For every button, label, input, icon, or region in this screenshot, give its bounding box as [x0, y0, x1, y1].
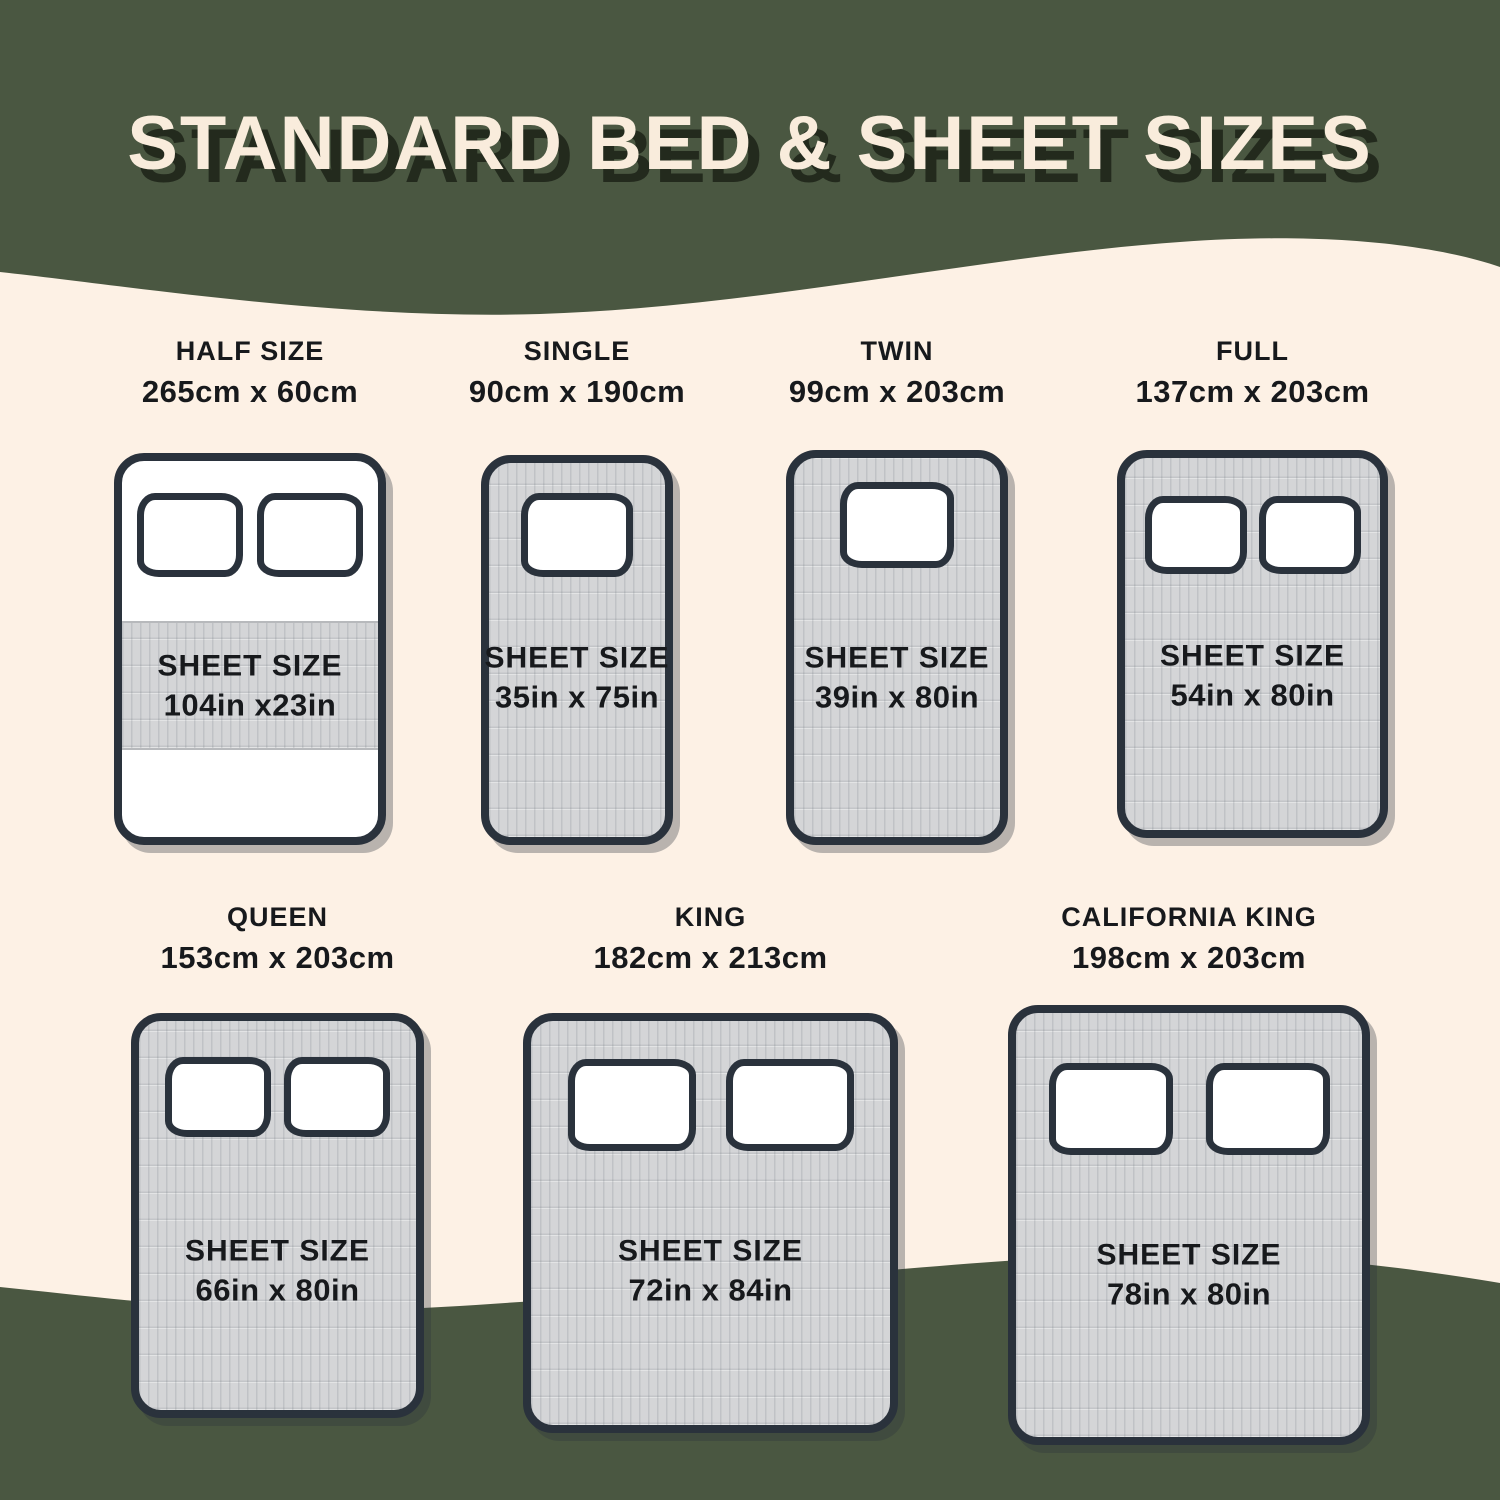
bed-label-california-king: CALIFORNIA KING198cm x 203cm	[1061, 902, 1316, 976]
sheet-size-value: 104in x23in	[157, 685, 342, 725]
bed-name: QUEEN	[227, 902, 328, 933]
sheet-size-label: SHEET SIZE	[804, 638, 989, 677]
sheet-size-value: 39in x 80in	[804, 677, 989, 717]
bed-name: HALF SIZE	[176, 336, 325, 367]
pillow-row	[794, 482, 1000, 568]
bed-dimensions: 90cm x 190cm	[469, 374, 685, 410]
sheet-size-value: 54in x 80in	[1160, 675, 1345, 715]
sheet-size-label: SHEET SIZE	[1096, 1235, 1281, 1274]
sheet-size-value: 72in x 84in	[618, 1270, 803, 1310]
sheet-size-text: SHEET SIZE54in x 80in	[1160, 636, 1345, 715]
sheet-size-text: SHEET SIZE72in x 84in	[618, 1231, 803, 1310]
sheet-size-text: SHEET SIZE104in x23in	[157, 646, 342, 725]
pillow-row	[1016, 1063, 1362, 1155]
bed-name: SINGLE	[524, 336, 631, 367]
bed-dimensions: 182cm x 213cm	[593, 940, 827, 976]
pillow	[1145, 496, 1247, 574]
bed-dimensions: 99cm x 203cm	[789, 374, 1005, 410]
bed-dimensions: 265cm x 60cm	[142, 374, 358, 410]
pillow	[521, 493, 633, 577]
bed-diagram-california-king: SHEET SIZE78in x 80in	[1008, 1005, 1370, 1445]
bed-label-single: SINGLE90cm x 190cm	[469, 336, 685, 410]
bed-label-king: KING182cm x 213cm	[593, 902, 827, 976]
bed-diagram-queen: SHEET SIZE66in x 80in	[131, 1013, 424, 1418]
pillow-row	[122, 493, 378, 577]
sheet-band: SHEET SIZE104in x23in	[122, 621, 378, 750]
sheet-size-text: SHEET SIZE66in x 80in	[185, 1231, 370, 1310]
pillow-row	[139, 1057, 416, 1137]
bed-label-half-size: HALF SIZE265cm x 60cm	[142, 336, 358, 410]
pillow	[284, 1057, 390, 1137]
pillow	[568, 1059, 696, 1151]
bed-name: CALIFORNIA KING	[1061, 902, 1316, 933]
bed-diagram-king: SHEET SIZE72in x 84in	[523, 1013, 898, 1433]
bed-name: KING	[675, 902, 747, 933]
bed-dimensions: 137cm x 203cm	[1135, 374, 1369, 410]
sheet-size-text: SHEET SIZE39in x 80in	[804, 638, 989, 717]
sheet-size-value: 78in x 80in	[1096, 1274, 1281, 1314]
sheet-size-label: SHEET SIZE	[185, 1231, 370, 1270]
pillow-row	[1125, 496, 1380, 574]
pillow-row	[531, 1059, 890, 1151]
bed-label-queen: QUEEN153cm x 203cm	[160, 902, 394, 976]
bed-sizes-infographic: STANDARD BED & SHEET SIZES HALF SIZE265c…	[0, 0, 1500, 1500]
pillow	[1206, 1063, 1330, 1155]
bed-dimensions: 153cm x 203cm	[160, 940, 394, 976]
sheet-size-value: 35in x 75in	[484, 677, 669, 717]
bed-diagram-half-size: SHEET SIZE104in x23in	[114, 453, 386, 845]
bed-name: TWIN	[861, 336, 934, 367]
sheet-size-text: SHEET SIZE78in x 80in	[1096, 1235, 1281, 1314]
page-title: STANDARD BED & SHEET SIZES	[0, 100, 1500, 187]
sheet-size-label: SHEET SIZE	[157, 646, 342, 685]
bed-name: FULL	[1216, 336, 1289, 367]
pillow	[257, 493, 363, 577]
bed-dimensions: 198cm x 203cm	[1072, 940, 1306, 976]
sheet-size-text: SHEET SIZE35in x 75in	[484, 638, 669, 717]
sheet-size-label: SHEET SIZE	[618, 1231, 803, 1270]
sheet-size-label: SHEET SIZE	[484, 638, 669, 677]
pillow	[726, 1059, 854, 1151]
pillow	[1259, 496, 1361, 574]
pillow	[137, 493, 243, 577]
bed-label-twin: TWIN99cm x 203cm	[789, 336, 1005, 410]
pillow	[1049, 1063, 1173, 1155]
bed-label-full: FULL137cm x 203cm	[1135, 336, 1369, 410]
bed-diagram-single: SHEET SIZE35in x 75in	[481, 455, 673, 845]
pillow	[840, 482, 954, 568]
pillow	[165, 1057, 271, 1137]
sheet-size-value: 66in x 80in	[185, 1270, 370, 1310]
sheet-size-label: SHEET SIZE	[1160, 636, 1345, 675]
bed-diagram-twin: SHEET SIZE39in x 80in	[786, 450, 1008, 845]
pillow-row	[489, 493, 665, 577]
bed-diagram-full: SHEET SIZE54in x 80in	[1117, 450, 1388, 838]
